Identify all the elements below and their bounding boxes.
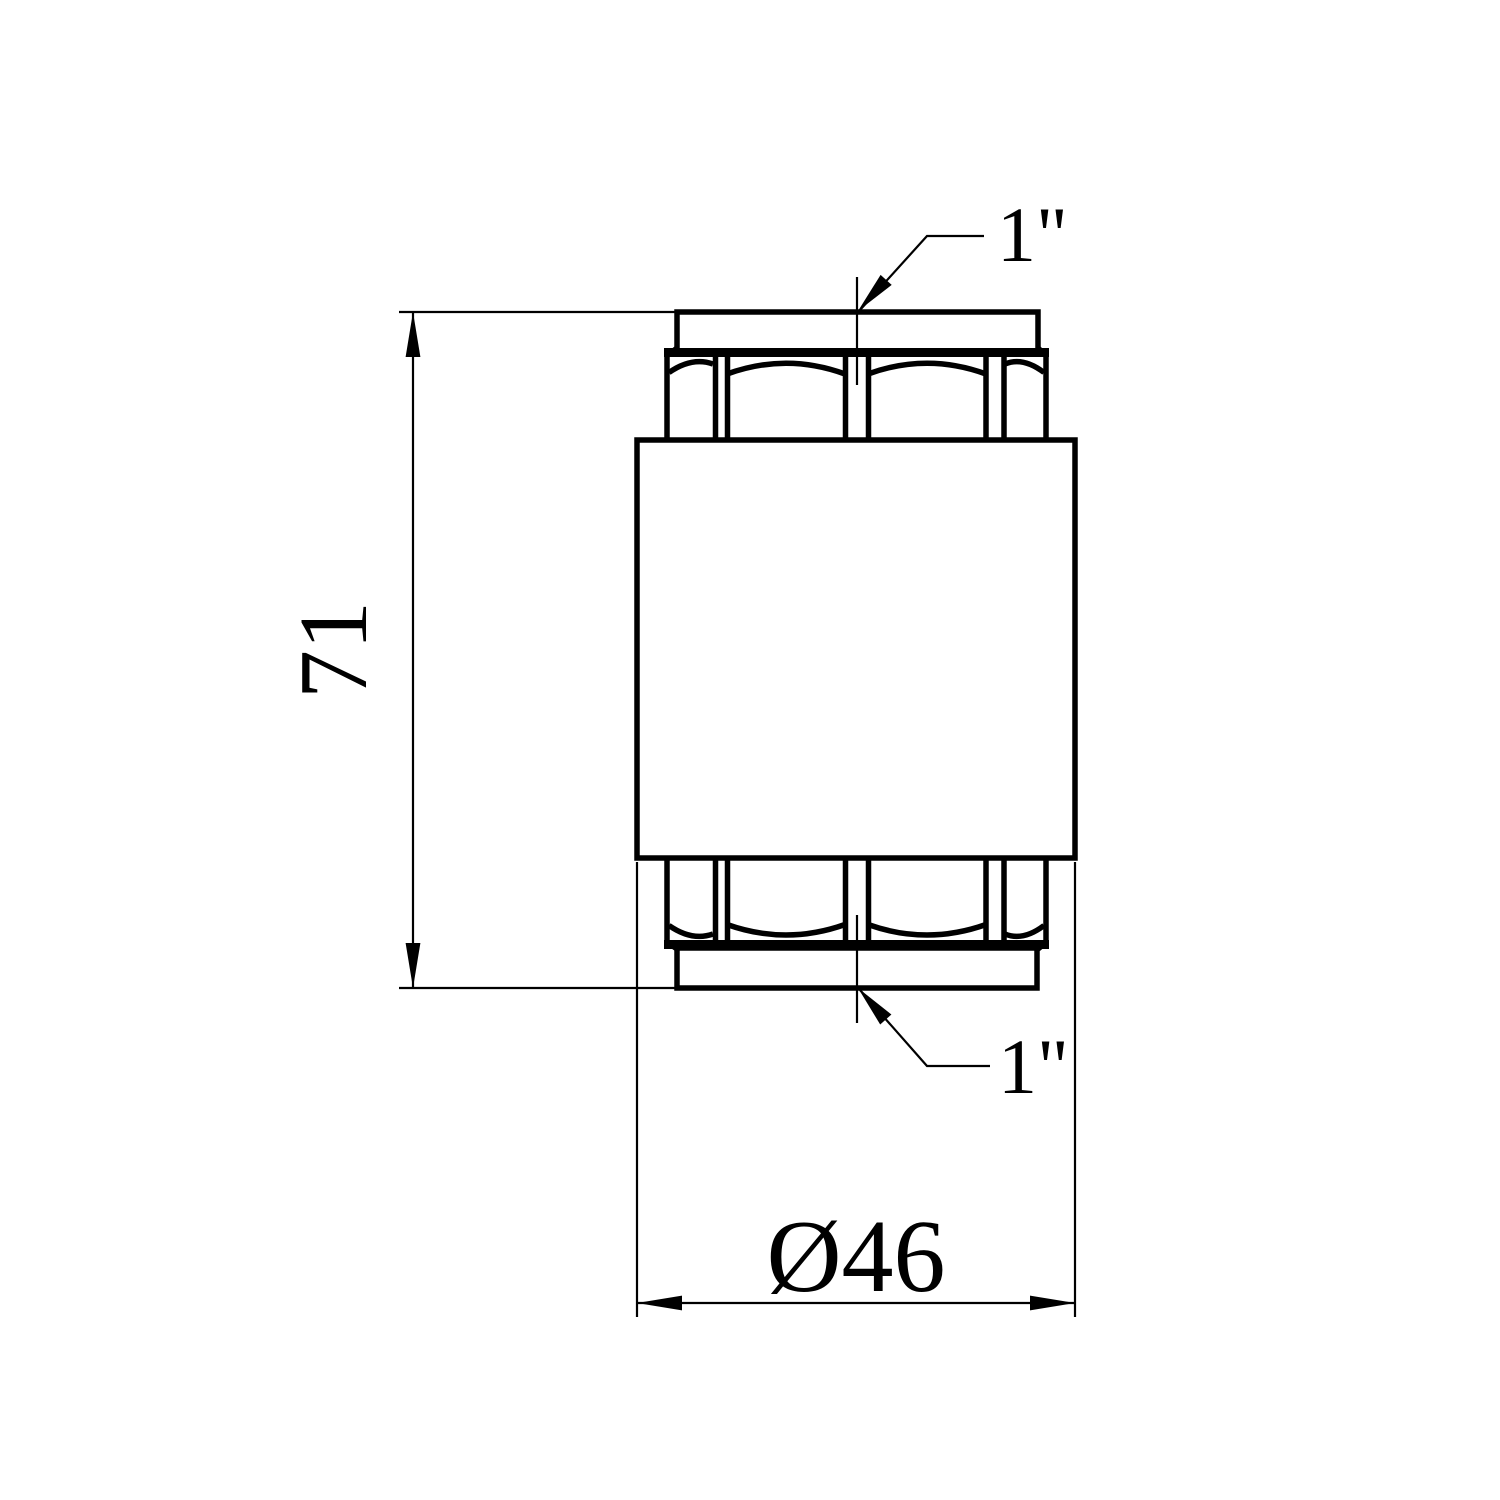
height-arrow-up-icon (406, 312, 421, 357)
valve-body (637, 440, 1075, 858)
diameter-arrow-left-icon (637, 1296, 682, 1311)
height-arrow-down-icon (406, 943, 421, 988)
technical-drawing: 71 Ø46 1" 1" (0, 0, 1500, 1500)
top-thread-leader-line (860, 236, 984, 310)
height-dimension: 71 (280, 312, 677, 988)
drawing-canvas: 71 Ø46 1" 1" (0, 0, 1500, 1500)
top-thread-label: 1" (997, 191, 1068, 278)
bottom-thread-label: 1" (998, 1023, 1069, 1110)
fitting-outline (637, 312, 1075, 988)
bottom-thread-leader-line (860, 990, 990, 1066)
height-dim-label: 71 (280, 601, 388, 699)
diameter-arrow-right-icon (1030, 1296, 1075, 1311)
diameter-dim-label: Ø46 (766, 1199, 945, 1314)
